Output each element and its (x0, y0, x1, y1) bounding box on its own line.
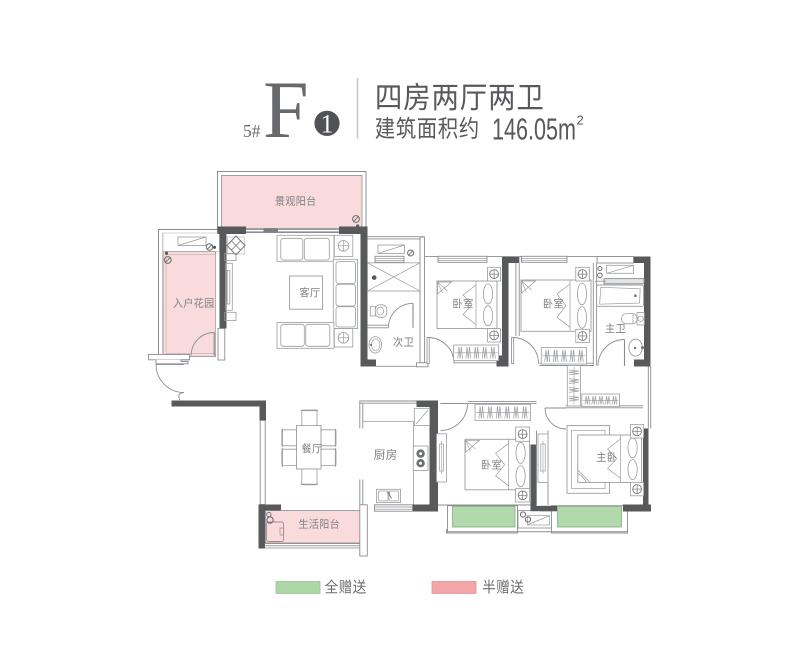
svg-text:F: F (263, 64, 309, 155)
svg-text:5#: 5# (243, 121, 261, 141)
svg-text:1: 1 (321, 110, 334, 139)
svg-text:146.05m: 146.05m (492, 113, 576, 147)
svg-text:2: 2 (577, 113, 584, 128)
